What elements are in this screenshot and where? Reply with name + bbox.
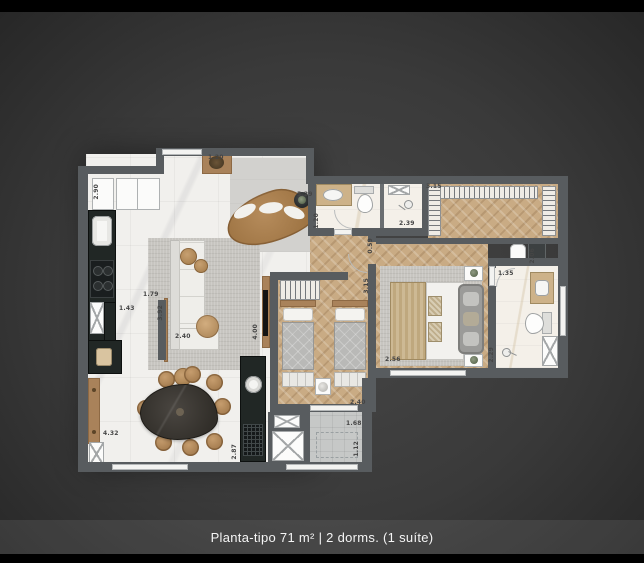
- entry-door: [162, 149, 202, 155]
- dimension-label: 3.15: [426, 184, 442, 190]
- caption-bar: Planta-tipo 71 m² | 2 dorms. (1 suíte): [0, 520, 644, 554]
- sink-icon: [323, 189, 343, 201]
- toilet-icon: [357, 194, 373, 213]
- barbecue-grill-icon: [243, 424, 263, 456]
- bed-blanket: [334, 322, 366, 370]
- wall: [376, 238, 558, 244]
- wall: [78, 166, 162, 174]
- kitchen-sink: [92, 216, 112, 246]
- kitchen-cabinet-dark: [104, 302, 116, 344]
- dimension-label: 2.39: [399, 221, 415, 227]
- dimension-label: 2.40: [350, 400, 366, 406]
- suite-bed-throw: [390, 282, 426, 360]
- floor-plan-stage: 2.901.205.291.201.791.433.922.404.004.32…: [0, 0, 644, 563]
- burner-icon: [93, 281, 103, 291]
- fridge: [116, 178, 160, 210]
- dimension-label: 2.29: [489, 347, 495, 363]
- burner-icon: [103, 266, 113, 276]
- shaft-x-icon: [542, 336, 558, 366]
- dimension-label: 4.00: [253, 324, 259, 340]
- dimension-label: 0.59: [368, 238, 374, 254]
- bed-foot-bench: [282, 372, 314, 387]
- bottom-black-strip: [0, 554, 644, 563]
- dining-chair: [184, 366, 201, 383]
- closet-hangers: [280, 280, 320, 300]
- dimension-label: 5.29: [297, 192, 313, 198]
- wall: [488, 258, 558, 266]
- window: [560, 286, 566, 336]
- lavatory-vanity: [316, 184, 352, 206]
- dimension-label: 2.90: [94, 184, 100, 200]
- burner-icon: [103, 281, 113, 291]
- dimension-label: 2.06: [530, 248, 536, 264]
- shaft-x-icon: [90, 302, 104, 334]
- ac-condenser-dashed-outline: [316, 432, 358, 458]
- coffee-station: [88, 340, 122, 374]
- knob-icon: [92, 388, 96, 392]
- plant-icon: [470, 269, 478, 277]
- dimension-label: 4.32: [103, 431, 119, 437]
- bed-headboard: [332, 300, 368, 307]
- suite-bath-vanity: [530, 272, 554, 304]
- cushion: [463, 332, 479, 346]
- dining-chair: [206, 433, 223, 450]
- lamp-icon: [318, 382, 328, 392]
- plant-icon: [470, 356, 478, 364]
- coffee-table: [196, 315, 219, 338]
- dimension-label: 1.35: [498, 271, 514, 277]
- wall: [422, 182, 428, 236]
- dimension-label: 2.87: [232, 444, 238, 460]
- wall: [270, 272, 278, 412]
- door-opening: [489, 266, 495, 286]
- wall: [308, 228, 334, 236]
- wall: [558, 176, 568, 378]
- bed-headboard: [280, 300, 316, 307]
- sideboard: [88, 378, 100, 444]
- door-opening: [334, 229, 352, 235]
- closet-hangers: [428, 186, 441, 236]
- shaft-x-icon: [272, 431, 304, 461]
- dimension-label: 1.20: [208, 155, 224, 161]
- window: [390, 370, 466, 376]
- dimension-label: 1.43: [119, 306, 135, 312]
- dimension-label: 2.40: [175, 334, 191, 340]
- shower-partition: [380, 184, 384, 228]
- toilet-tank: [354, 186, 374, 194]
- window: [112, 464, 188, 470]
- shaft-x-icon: [388, 185, 410, 195]
- cushion: [463, 292, 479, 306]
- dining-chair: [206, 374, 223, 391]
- tv-icon: [263, 290, 268, 336]
- balcony-railing: [286, 464, 358, 470]
- dimension-label: 3.15: [364, 278, 370, 294]
- pillow: [335, 308, 365, 321]
- caption-text: Planta-tipo 71 m² | 2 dorms. (1 suíte): [211, 530, 434, 545]
- suite-headboard-bench: [458, 284, 484, 354]
- shaft-x-icon: [274, 415, 300, 428]
- dimension-label: 1.20: [314, 213, 320, 229]
- pillow: [283, 308, 313, 321]
- bed-blanket: [282, 322, 314, 370]
- round-sink-icon: [245, 376, 262, 393]
- cooktop: [90, 260, 114, 298]
- appliance-icon: [96, 348, 112, 366]
- table-decor: [176, 408, 184, 416]
- wall: [78, 166, 88, 472]
- burner-icon: [93, 266, 103, 276]
- pillow: [428, 296, 442, 316]
- wall: [278, 272, 348, 280]
- hand-shower-icon: [404, 200, 413, 209]
- closet-hangers: [434, 186, 538, 199]
- fridge-door-line: [137, 179, 138, 209]
- pouf: [194, 259, 208, 273]
- dimension-label: 1.12: [354, 441, 360, 457]
- wall: [352, 228, 428, 236]
- sink-icon: [535, 280, 549, 296]
- top-black-strip: [0, 0, 644, 12]
- dimension-label: 1.68: [346, 421, 362, 427]
- dining-table: [140, 384, 218, 440]
- dimension-label: 1.79: [143, 292, 159, 298]
- dimension-label: 3.92: [158, 305, 164, 321]
- dimension-label: 2.56: [385, 357, 401, 363]
- pillow: [428, 322, 442, 342]
- cushion: [463, 312, 479, 326]
- knob-icon: [92, 430, 96, 434]
- closet-hangers: [542, 186, 556, 236]
- dining-chair: [182, 439, 199, 456]
